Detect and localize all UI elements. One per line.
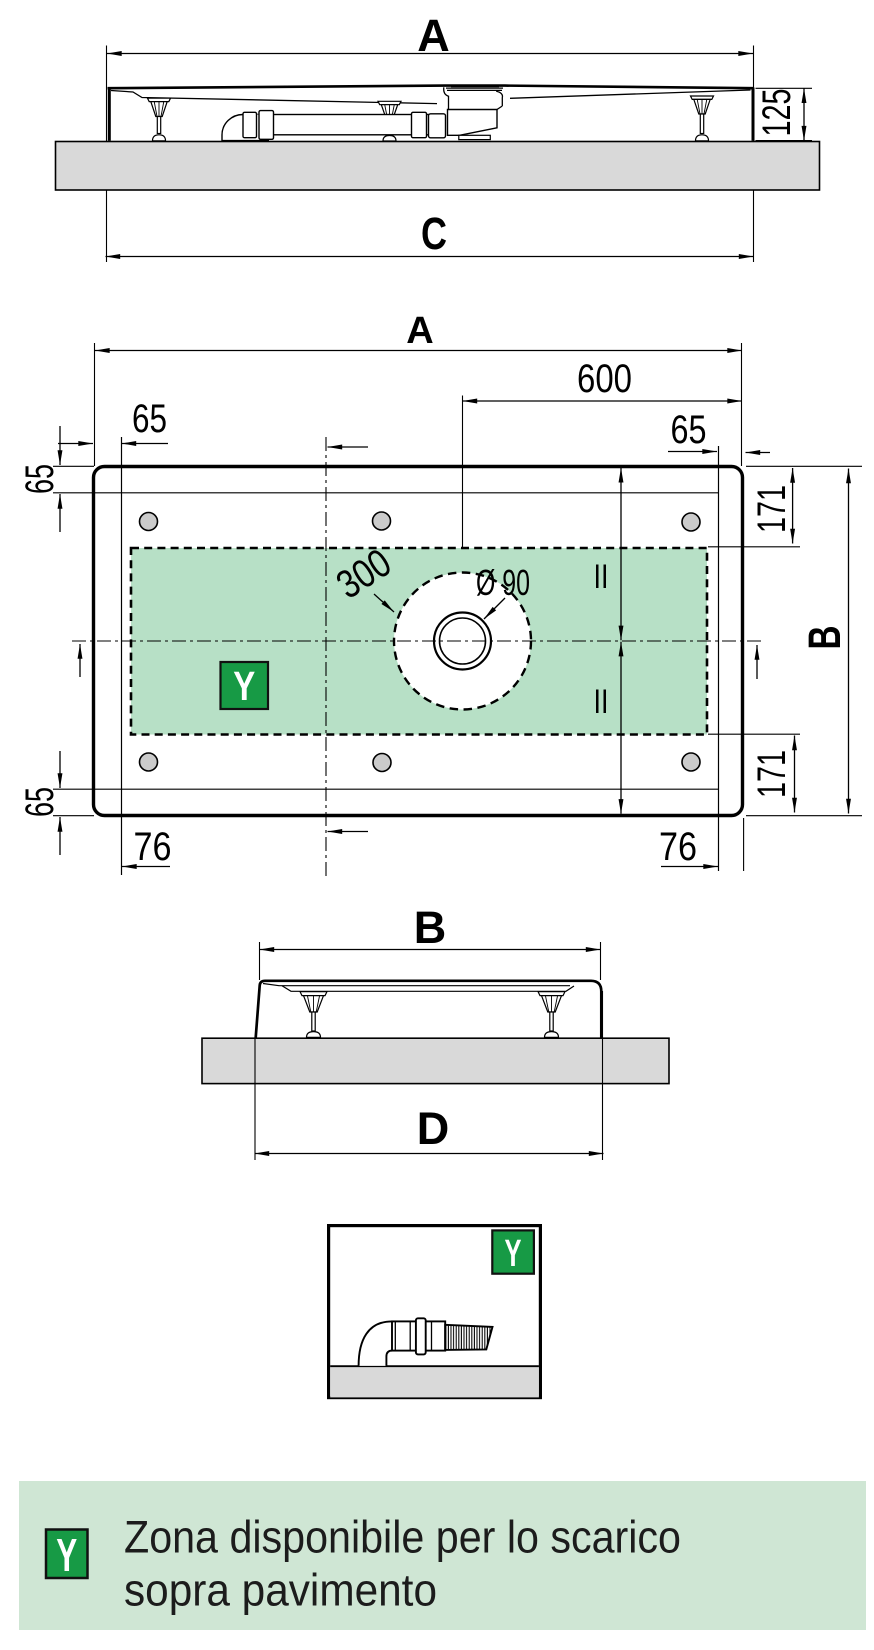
svg-text:76: 76 <box>659 825 697 869</box>
svg-text:65: 65 <box>671 408 707 452</box>
svg-text:Y: Y <box>56 1529 77 1581</box>
svg-text:sopra pavimento: sopra pavimento <box>124 1565 437 1616</box>
svg-text:II: II <box>594 683 609 721</box>
svg-text:125: 125 <box>755 89 799 137</box>
svg-text:Y: Y <box>505 1233 522 1275</box>
svg-text:D: D <box>417 1103 450 1154</box>
svg-text:B: B <box>799 626 850 650</box>
svg-text:65: 65 <box>18 787 62 817</box>
svg-text:171: 171 <box>750 750 794 798</box>
svg-text:65: 65 <box>18 464 62 494</box>
svg-text:Ø 90: Ø 90 <box>476 562 530 603</box>
svg-text:B: B <box>414 902 447 953</box>
svg-text:Y: Y <box>233 663 255 709</box>
svg-text:C: C <box>421 208 447 259</box>
svg-text:A: A <box>406 310 433 352</box>
svg-text:II: II <box>594 558 609 596</box>
svg-text:Zona disponibile per lo scaric: Zona disponibile per lo scarico <box>124 1512 681 1563</box>
svg-text:76: 76 <box>134 825 172 869</box>
svg-text:65: 65 <box>132 397 167 441</box>
svg-text:171: 171 <box>750 485 794 533</box>
svg-text:600: 600 <box>577 357 632 401</box>
